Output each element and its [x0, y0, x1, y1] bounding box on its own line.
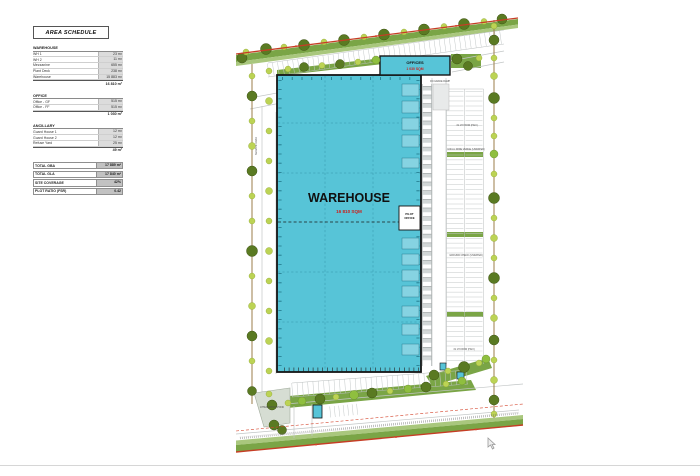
- total-row: TOTAL GLA17 840 m²: [33, 171, 123, 178]
- total-value: 17 889 m²: [96, 163, 122, 168]
- area-schedule-panel: AREA SCHEDULE WAREHOUSE WH 123 m² WH 211…: [30, 26, 126, 196]
- row-label: Mezzanine: [33, 63, 98, 67]
- annotation-road: SERVICE ROAD: [255, 137, 258, 155]
- pond-label: ATTENUATION POND: [260, 406, 284, 409]
- total-row: TOTAL GBA17 889 m²: [33, 162, 123, 169]
- total-value: 42%: [96, 180, 122, 185]
- offices-label: OFFICES: [406, 60, 424, 65]
- total-value: 0.42: [96, 189, 122, 194]
- annotation-check: GROUND CHECK (UNRATED): [449, 254, 482, 257]
- row-label: Warehouse: [33, 75, 98, 79]
- trees-left: [247, 64, 273, 404]
- parking-right: [447, 89, 484, 364]
- loading-docks: [423, 84, 450, 366]
- row-label: Office - GF: [33, 100, 98, 104]
- annotation-ramp: ON GRADE RAMP: [430, 80, 451, 83]
- row-value: 25 m²: [98, 141, 123, 146]
- row-value: 11 m²: [98, 57, 123, 62]
- on-grade-ramp: [433, 84, 449, 110]
- row-label: Guard House 2: [33, 136, 98, 140]
- subtotal-value: 49 m²: [99, 148, 123, 152]
- row-value: 655 m²: [98, 63, 123, 68]
- total-label: PLOT RATIO (FSR): [34, 189, 96, 193]
- annotation-verge: 100mm WIDE VERGE (UNRATED): [447, 148, 485, 151]
- total-row: SITE COVERAGE42%: [33, 179, 123, 186]
- offices-block: OFFICES 1 030 SQM: [380, 56, 450, 75]
- schedule-section-warehouse: WAREHOUSE WH 123 m² WH 211 m² Mezzanine6…: [33, 46, 123, 87]
- ancillary-box: [440, 363, 446, 370]
- pilot-office-label: OFFICE: [404, 216, 414, 220]
- total-label: TOTAL GBA: [34, 164, 96, 168]
- row-label: WH 1: [33, 52, 98, 56]
- section-subtotal: 49 m²: [33, 147, 123, 153]
- subtotal-value: 1 030 m²: [99, 112, 123, 116]
- row-value: 12 m²: [98, 135, 123, 140]
- drawing-canvas: AREA SCHEDULE WAREHOUSE WH 123 m² WH 211…: [0, 0, 700, 476]
- total-label: TOTAL GLA: [34, 172, 96, 176]
- mouse-cursor: [487, 437, 499, 451]
- subtotal-value: 16 810 m²: [99, 82, 123, 86]
- schedule-totals: TOTAL GBA17 889 m² TOTAL GLA17 840 m² SI…: [33, 162, 123, 195]
- row-value: 15 883 m²: [98, 75, 123, 80]
- site-plan: WAREHOUSE 16 810 SQM PILOT OFFICE OFFICE…: [236, 6, 536, 464]
- annotation-row-top: 31 170 ROW (HGV): [456, 124, 477, 127]
- row-label: Office - FF: [33, 105, 98, 109]
- row-value: 515 m²: [98, 99, 123, 104]
- schedule-section-ancillary: ANCILLARY Guard House 112 m² Guard House…: [33, 124, 123, 153]
- area-schedule-title: AREA SCHEDULE: [33, 26, 109, 39]
- section-subtotal: 1 030 m²: [33, 111, 123, 117]
- pilot-office: PILOT OFFICE: [399, 206, 420, 230]
- row-label: Plant Deck: [33, 69, 98, 73]
- row-value: 515 m²: [98, 105, 123, 110]
- warehouse-area-label: 16 810 SQM: [336, 209, 362, 214]
- row-value: 12 m²: [98, 129, 123, 134]
- annotation-row-bottom: 31 170 ROW (HGV): [453, 348, 474, 351]
- schedule-section-office: OFFICE Office - GF515 m² Office - FF515 …: [33, 94, 123, 117]
- page-divider: [0, 465, 700, 466]
- row-label: WH 2: [33, 58, 98, 62]
- row-label: Refuse Yard: [33, 141, 98, 145]
- total-row: PLOT RATIO (FSR)0.42: [33, 188, 123, 195]
- offices-area-label: 1 030 SQM: [406, 67, 423, 71]
- row-value: 238 m²: [98, 69, 123, 74]
- total-value: 17 840 m²: [96, 172, 122, 177]
- warehouse-label: WAREHOUSE: [308, 191, 390, 205]
- total-label: SITE COVERAGE: [34, 181, 96, 185]
- row-value: 23 m²: [98, 52, 123, 57]
- section-subtotal: 16 810 m²: [33, 80, 123, 86]
- guard-house: [313, 405, 322, 418]
- row-label: Guard House 1: [33, 130, 98, 134]
- trees-right: [489, 20, 500, 418]
